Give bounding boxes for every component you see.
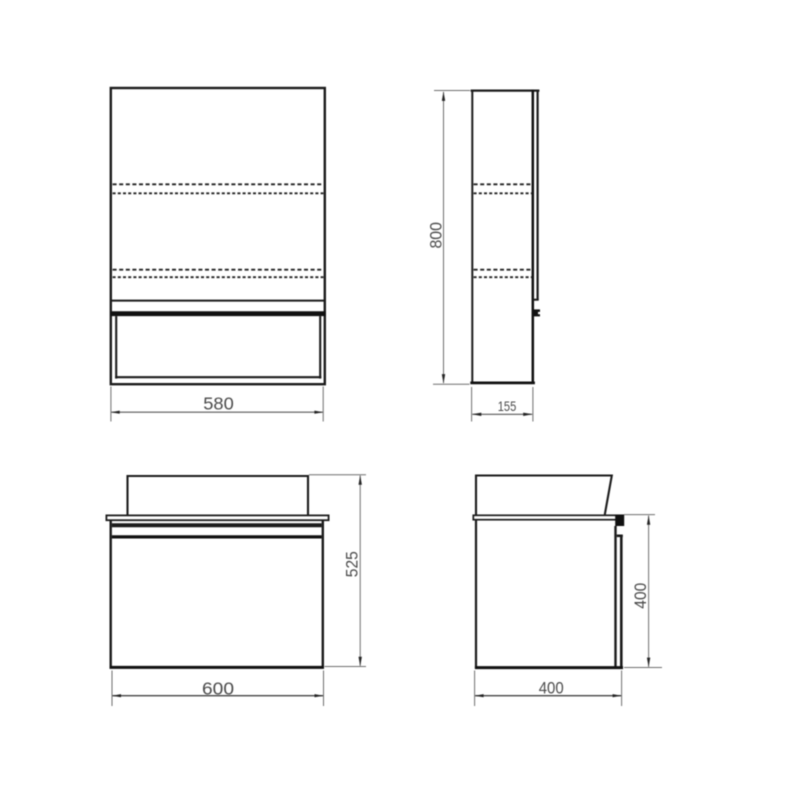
svg-text:400: 400 [539, 678, 564, 697]
svg-text:400: 400 [632, 583, 650, 609]
svg-text:580: 580 [203, 394, 234, 414]
svg-text:155: 155 [498, 399, 517, 415]
svg-text:600: 600 [202, 678, 234, 698]
svg-text:800: 800 [428, 222, 446, 249]
svg-text:525: 525 [344, 551, 362, 577]
